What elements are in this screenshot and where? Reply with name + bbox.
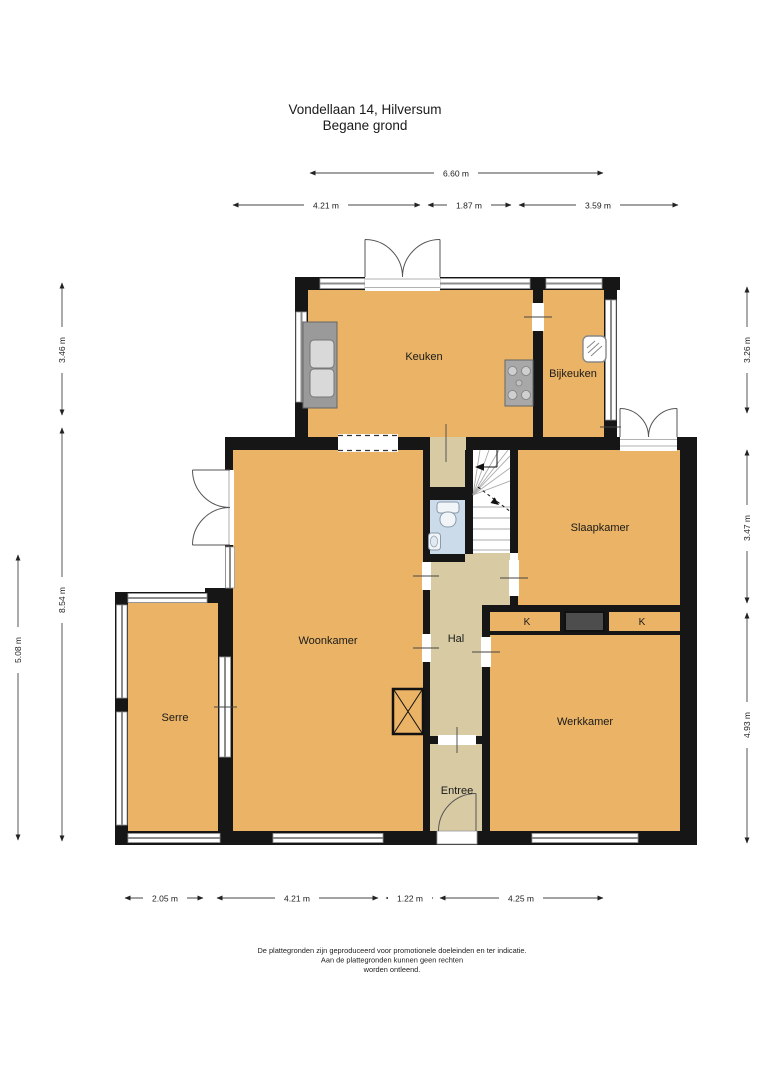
serving-hatch (338, 434, 398, 452)
dimension-bottom-4: 4.25 m (440, 892, 603, 904)
footer-line-3: worden ontleend. (363, 965, 421, 974)
window-woonkamer-left (226, 547, 235, 588)
boiler-icon (583, 336, 606, 362)
floor-plan-canvas: Vondellaan 14, Hilversum Begane grond (0, 0, 764, 1080)
window-bijkeuken-top (546, 279, 602, 289)
page-title: Vondellaan 14, Hilversum (288, 102, 441, 117)
dimension-top-2: 1.87 m (428, 199, 511, 211)
room-label-serre: Serre (162, 712, 189, 724)
staircase-floor (473, 450, 510, 553)
svg-text:4.93 m: 4.93 m (742, 712, 752, 738)
footer-line-1: De plattegronden zijn geproduceerd voor … (257, 946, 526, 955)
window-woonkamer-bottom (273, 834, 383, 843)
room-label-keuken: Keuken (405, 351, 442, 363)
chimney-block (565, 612, 604, 631)
dimension-top-total: 6.60 m (310, 167, 603, 179)
dimension-right-2: 3.47 m (741, 450, 753, 603)
floor-plan-page: Vondellaan 14, Hilversum Begane grond (0, 0, 764, 1080)
closet-label-left: K (524, 617, 531, 628)
room-label-woonkamer: Woonkamer (298, 635, 357, 647)
page-subtitle: Begane grond (323, 118, 408, 133)
dimension-left-1: 3.46 m (56, 283, 68, 415)
stove-icon (505, 360, 533, 406)
svg-text:3.46 m: 3.46 m (57, 337, 67, 363)
dimension-bottom-3: 1.22 m (386, 892, 433, 904)
window-werkkamer-bottom (532, 834, 638, 843)
room-label-entree: Entree (441, 785, 473, 797)
room-label-bijkeuken: Bijkeuken (549, 368, 597, 380)
svg-text:2.05 m: 2.05 m (152, 894, 178, 904)
svg-text:3.59 m: 3.59 m (585, 201, 611, 211)
dimension-left-3: 5.08 m (12, 555, 24, 840)
room-fills (126, 283, 680, 833)
room-label-slaapkamer: Slaapkamer (571, 522, 630, 534)
room-label-werkkamer: Werkkamer (557, 716, 613, 728)
room-label-hal: Hal (448, 633, 465, 645)
svg-text:1.22 m: 1.22 m (397, 894, 423, 904)
fireplace (393, 689, 423, 734)
window-serre-left-lower (117, 712, 128, 825)
svg-text:4.21 m: 4.21 m (313, 201, 339, 211)
svg-text:3.47 m: 3.47 m (742, 515, 752, 541)
svg-text:8.54 m: 8.54 m (57, 587, 67, 613)
dimension-left-2: 8.54 m (56, 428, 68, 841)
french-doors-keuken (365, 240, 440, 292)
svg-text:5.08 m: 5.08 m (13, 637, 23, 663)
french-doors-slaapkamer (620, 409, 677, 452)
dimension-top-3: 3.59 m (519, 199, 678, 211)
window-serre-top (128, 594, 207, 603)
french-doors-woonkamer (193, 470, 235, 545)
dimension-top-1: 4.21 m (233, 199, 420, 211)
dimension-bottom-2: 4.21 m (217, 892, 378, 904)
footer-disclaimer: De plattegronden zijn geproduceerd voor … (257, 946, 526, 974)
svg-text:4.21 m: 4.21 m (284, 894, 310, 904)
window-serre-left-upper (117, 605, 128, 698)
window-keuken-top-left (320, 279, 365, 289)
kitchen-sink-counter (303, 322, 337, 408)
svg-text:1.87 m: 1.87 m (456, 201, 482, 211)
window-keuken-top-right (440, 279, 530, 289)
svg-text:3.26 m: 3.26 m (742, 337, 752, 363)
window-serre-bottom (128, 834, 220, 843)
closet-label-right: K (639, 617, 646, 628)
footer-line-2: Aan de plattegronden kunnen geen rechten (321, 956, 463, 965)
dimension-right-3: 4.93 m (741, 613, 753, 843)
svg-text:4.25 m: 4.25 m (508, 894, 534, 904)
dimension-bottom-1: 2.05 m (125, 892, 203, 904)
sink-icon (429, 533, 441, 550)
svg-text:6.60 m: 6.60 m (443, 169, 469, 179)
dimension-right-1: 3.26 m (741, 287, 753, 413)
